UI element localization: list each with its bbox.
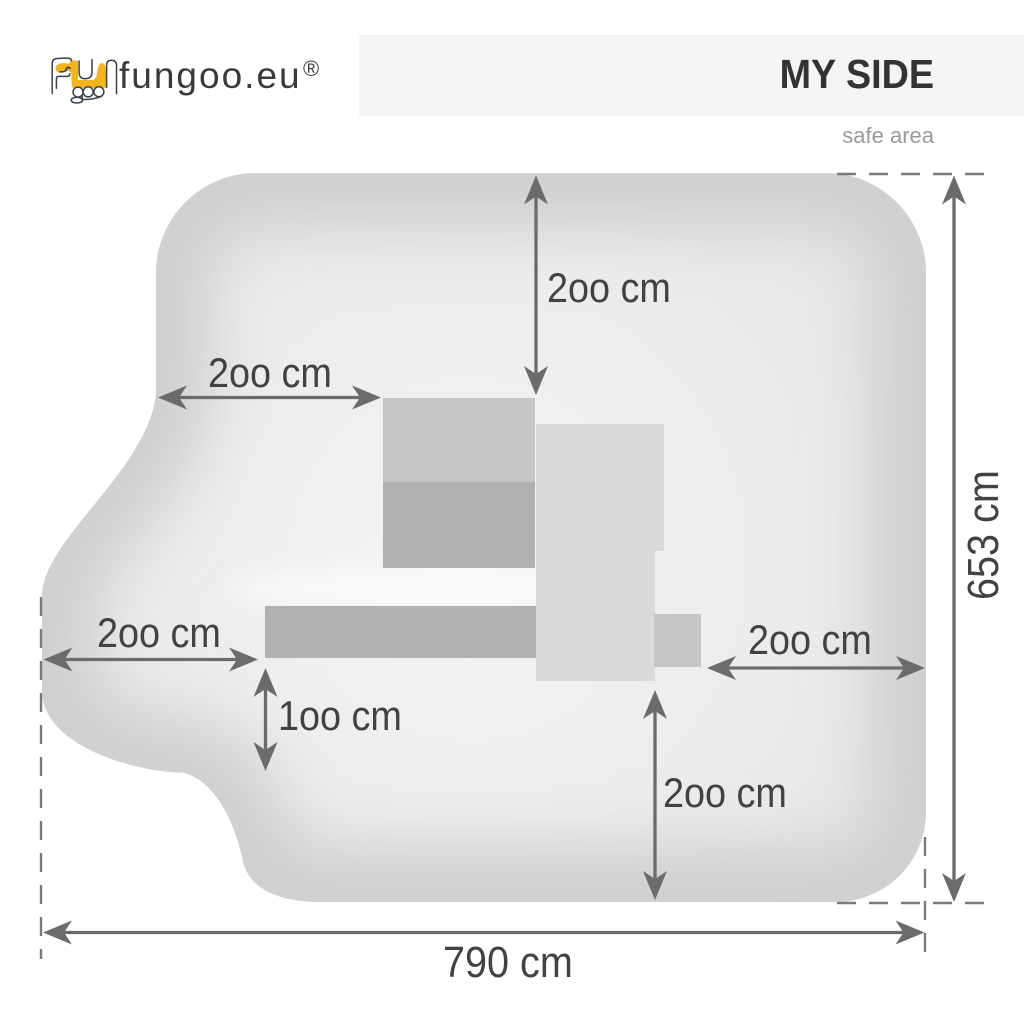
svg-text:safe area: safe area — [842, 123, 934, 148]
svg-text:fungoo.eu: fungoo.eu — [119, 55, 302, 96]
svg-text:2oo cm: 2oo cm — [748, 617, 872, 663]
svg-text:653 cm: 653 cm — [958, 470, 1007, 600]
svg-text:2oo cm: 2oo cm — [97, 610, 221, 656]
svg-text:®: ® — [303, 56, 319, 81]
svg-text:2oo cm: 2oo cm — [663, 770, 787, 816]
svg-text:2oo cm: 2oo cm — [208, 350, 332, 396]
svg-text:2oo cm: 2oo cm — [547, 265, 671, 311]
svg-text:MY SIDE: MY SIDE — [780, 52, 934, 98]
svg-text:1oo cm: 1oo cm — [278, 693, 402, 739]
svg-text:790 cm: 790 cm — [443, 937, 573, 986]
